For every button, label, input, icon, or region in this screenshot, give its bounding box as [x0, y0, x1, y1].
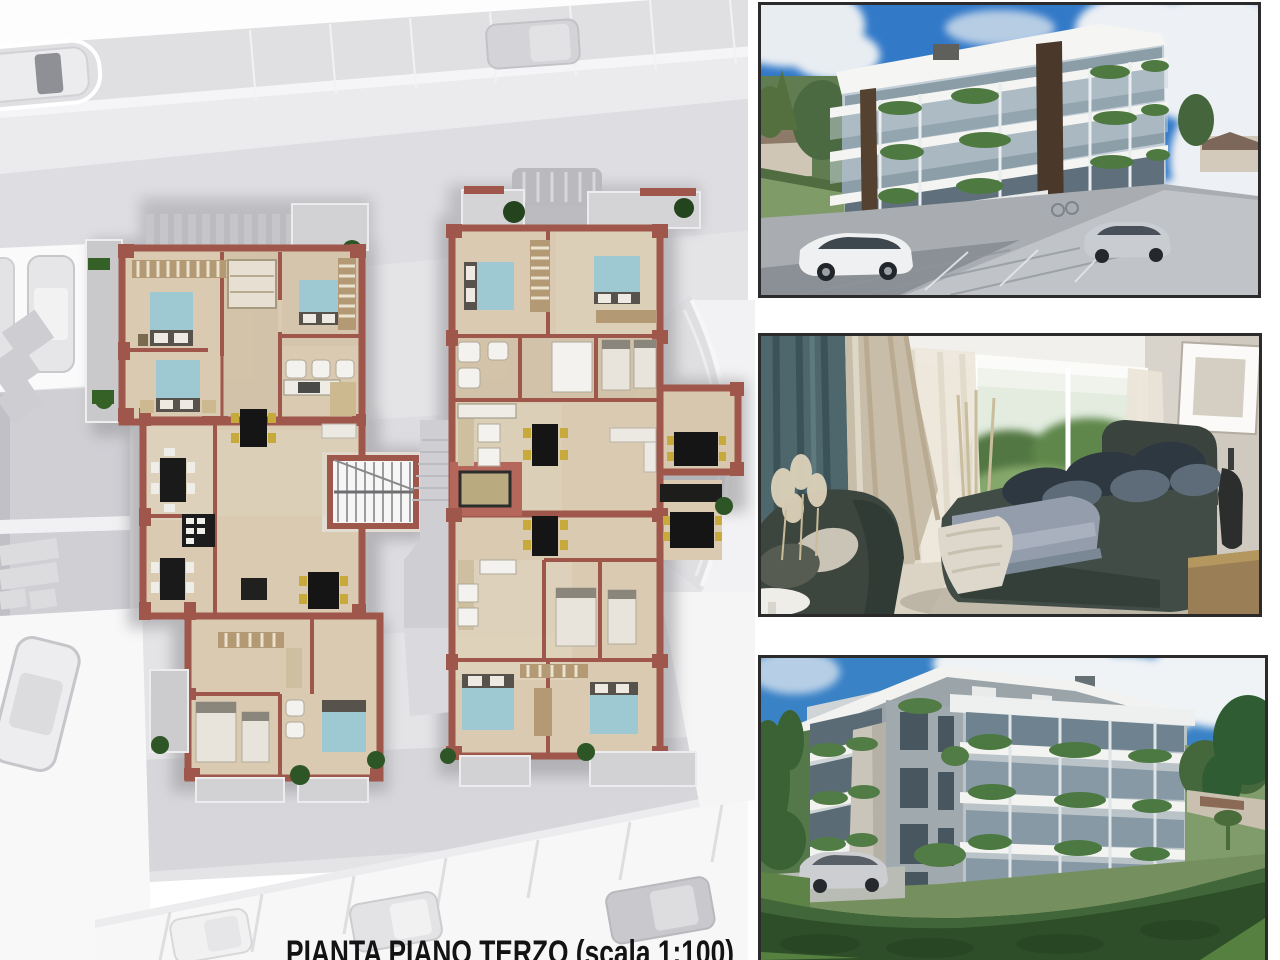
svg-text:PIANTA PIANO TERZO (scala 1:10: PIANTA PIANO TERZO (scala 1:100)	[286, 934, 734, 960]
